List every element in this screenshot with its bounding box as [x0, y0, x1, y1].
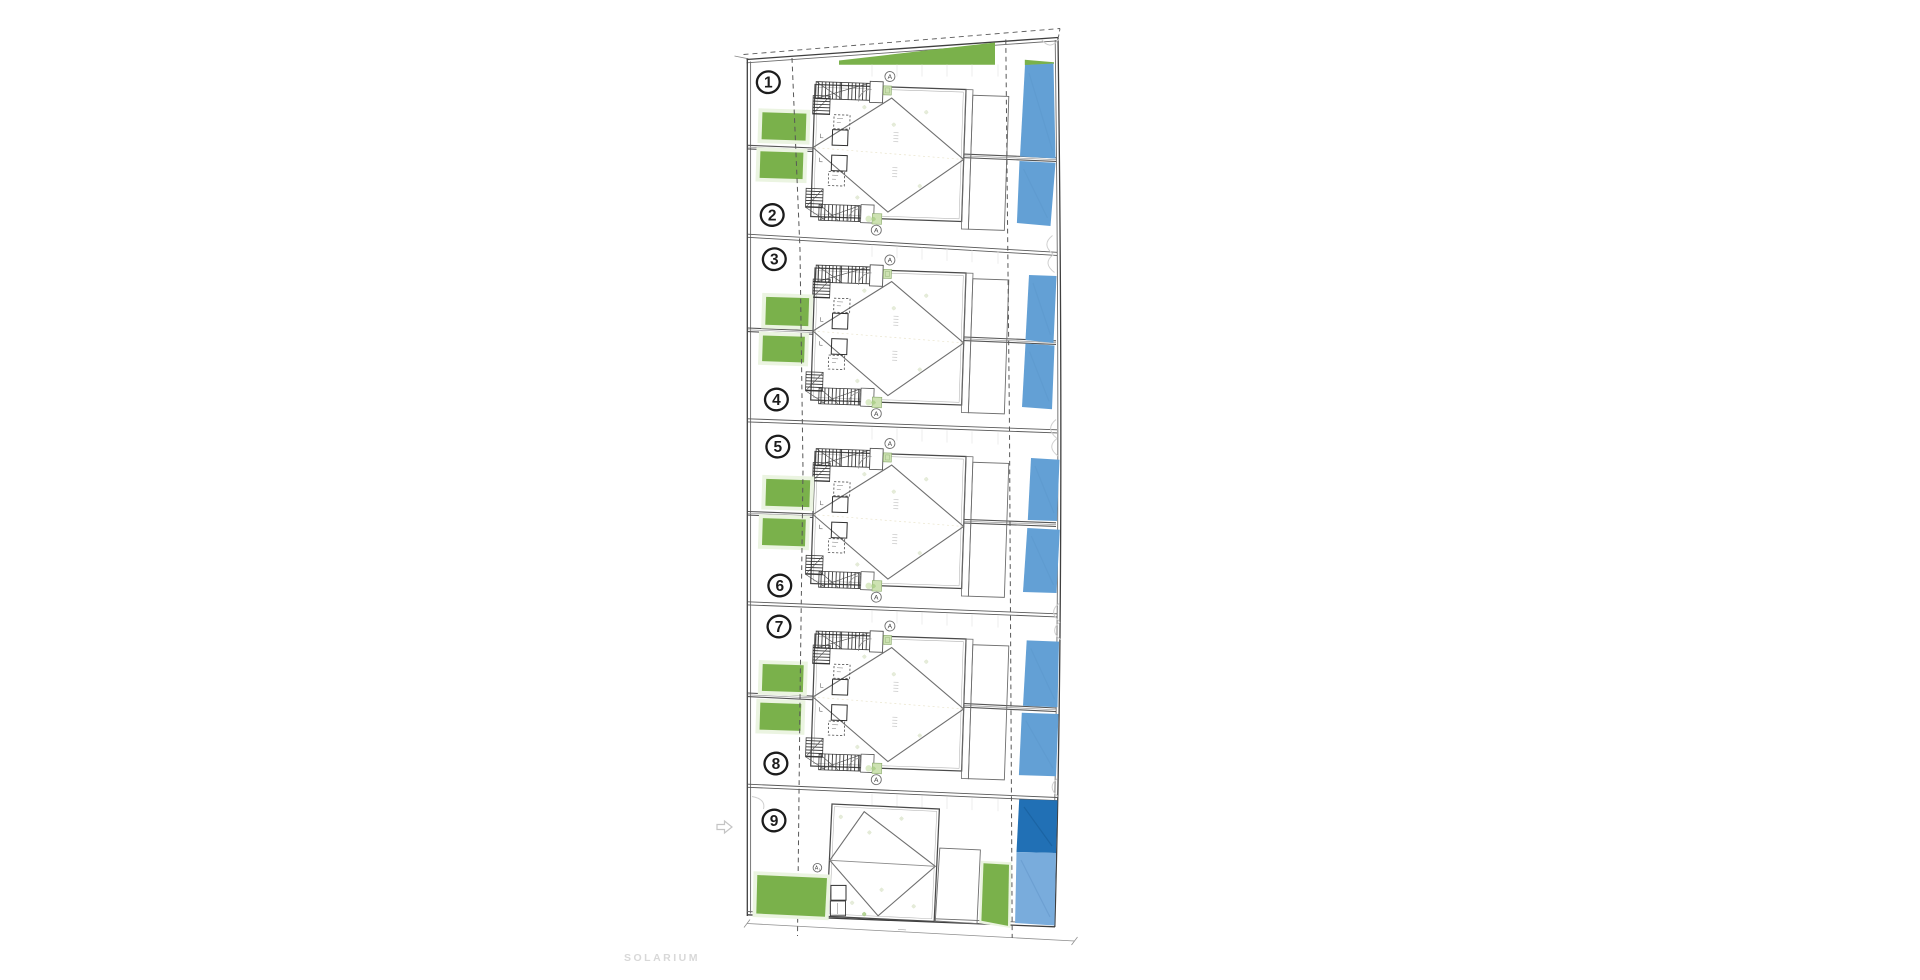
svg-text:6: 6 [775, 578, 784, 595]
svg-text:3: 3 [770, 252, 779, 269]
svg-text:1: 1 [764, 75, 773, 92]
svg-text:SOLARIUM: SOLARIUM [624, 952, 700, 964]
svg-text:5: 5 [773, 439, 782, 456]
svg-text:4: 4 [772, 392, 781, 409]
svg-text:9: 9 [770, 813, 779, 830]
svg-text:8: 8 [772, 756, 781, 773]
svg-text:2: 2 [768, 207, 777, 224]
svg-text:7: 7 [775, 619, 784, 636]
